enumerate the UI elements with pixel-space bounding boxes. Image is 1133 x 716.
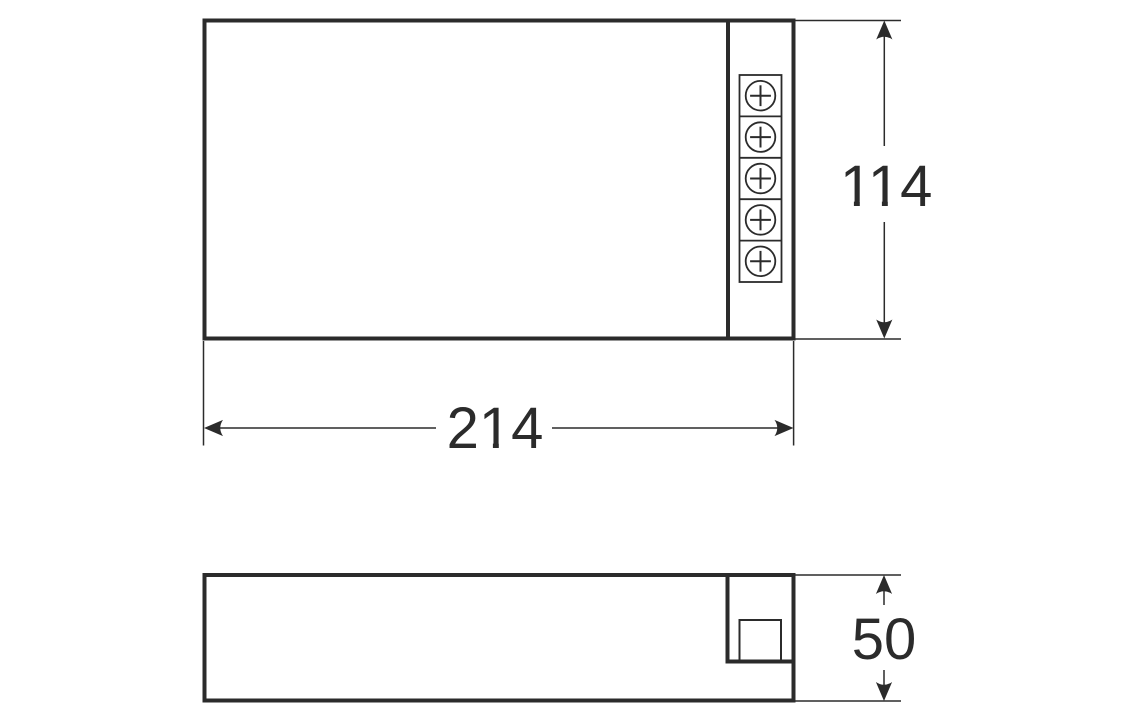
svg-text:50: 50 bbox=[852, 607, 917, 672]
svg-text:114: 114 bbox=[840, 154, 932, 219]
svg-text:214: 214 bbox=[447, 396, 544, 461]
